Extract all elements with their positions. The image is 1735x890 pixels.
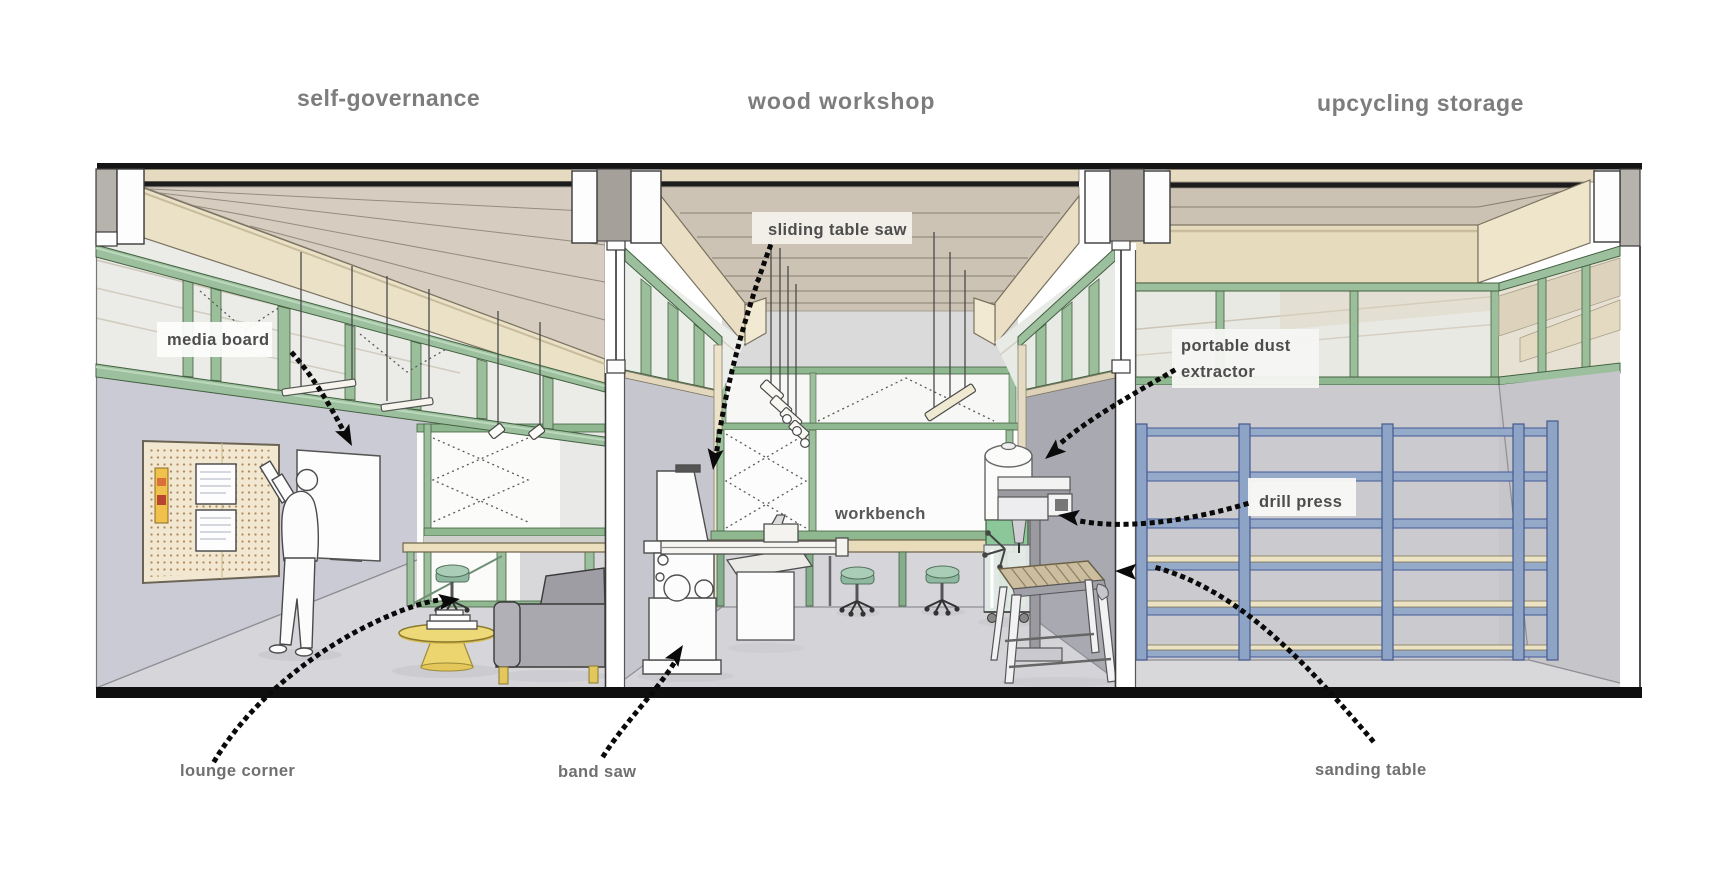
svg-text:sanding table: sanding table: [1315, 761, 1427, 779]
svg-text:lounge corner: lounge corner: [180, 762, 295, 780]
svg-text:media board: media board: [167, 331, 270, 349]
svg-text:workbench: workbench: [834, 505, 926, 523]
svg-text:portable dust: portable dust: [1181, 337, 1291, 355]
svg-text:wood workshop: wood workshop: [747, 88, 935, 114]
svg-text:band saw: band saw: [558, 763, 636, 781]
svg-text:upcycling storage: upcycling storage: [1317, 90, 1524, 116]
svg-text:drill press: drill press: [1259, 493, 1342, 511]
svg-text:extractor: extractor: [1181, 363, 1255, 381]
svg-text:sliding table saw: sliding table saw: [768, 221, 907, 239]
svg-text:self-governance: self-governance: [297, 85, 480, 111]
